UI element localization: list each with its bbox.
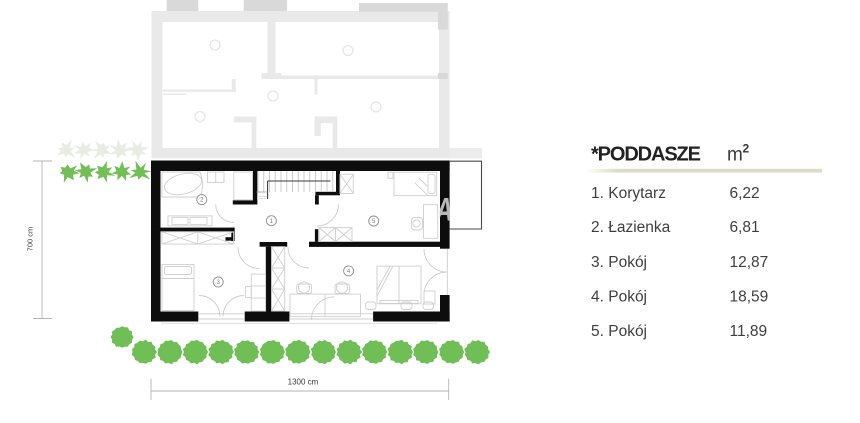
svg-text:700 cm: 700 cm [26,227,35,252]
svg-text:6,22: 6,22 [730,185,760,202]
svg-text:12,87: 12,87 [730,254,769,271]
svg-text:11,89: 11,89 [730,323,768,340]
svg-text:4. Pokój: 4. Pokój [591,288,647,305]
svg-text:6,81: 6,81 [730,219,760,236]
svg-text:18,59: 18,59 [730,288,769,305]
svg-text:*PODDASZE: *PODDASZE [591,144,701,166]
svg-text:1300 cm: 1300 cm [288,378,319,387]
svg-text:2. Łazienka: 2. Łazienka [591,219,671,236]
svg-text:1. Korytarz: 1. Korytarz [591,185,666,202]
svg-text:3. Pokój: 3. Pokój [591,254,647,271]
svg-text:5. Pokój: 5. Pokój [591,323,647,340]
svg-text:2: 2 [743,142,750,156]
svg-text:m: m [727,145,743,166]
